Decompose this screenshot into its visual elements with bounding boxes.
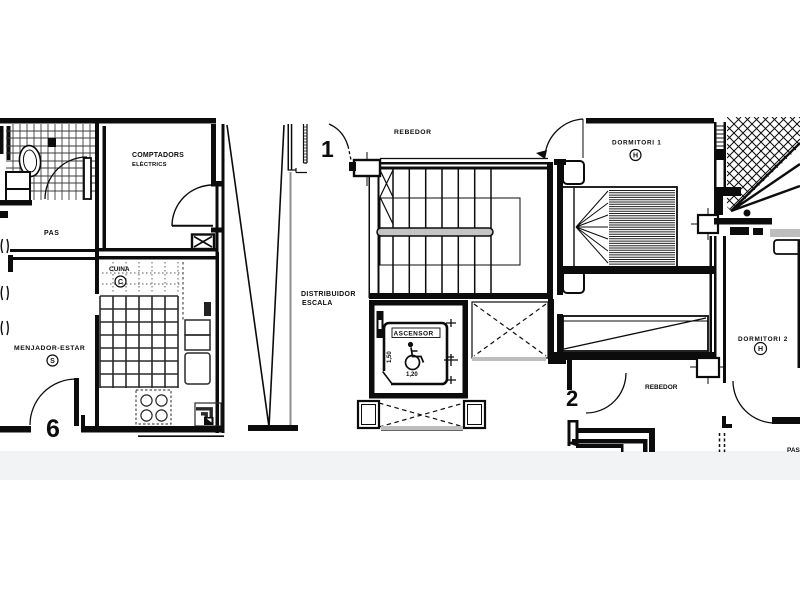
svg-text:PAS: PAS xyxy=(787,447,800,454)
svg-text:CUINA: CUINA xyxy=(109,266,130,273)
svg-text:H: H xyxy=(758,346,763,353)
svg-text:DORMITORI 2: DORMITORI 2 xyxy=(738,336,788,343)
svg-text:MENJADOR-ESTAR: MENJADOR-ESTAR xyxy=(14,345,85,352)
svg-text:COMPTADORS: COMPTADORS xyxy=(132,152,184,159)
svg-text:DISTRIBUIDOR: DISTRIBUIDOR xyxy=(301,291,356,298)
svg-text:1,20: 1,20 xyxy=(406,372,418,378)
svg-text:6: 6 xyxy=(46,415,60,443)
svg-text:ESCALA: ESCALA xyxy=(302,300,333,307)
svg-text:H: H xyxy=(633,153,638,160)
svg-text:REBEDOR: REBEDOR xyxy=(645,384,678,391)
svg-text:2: 2 xyxy=(566,386,578,411)
svg-text:C: C xyxy=(118,279,123,286)
svg-text:ASCENSOR: ASCENSOR xyxy=(394,331,434,338)
svg-text:DORMITORI 1: DORMITORI 1 xyxy=(612,140,661,147)
svg-text:PAS: PAS xyxy=(44,230,59,237)
svg-text:ELÈCTRICS: ELÈCTRICS xyxy=(132,160,167,168)
svg-text:S: S xyxy=(50,358,55,365)
svg-text:1: 1 xyxy=(321,136,334,162)
svg-text:REBEDOR: REBEDOR xyxy=(394,129,432,136)
svg-text:1,50: 1,50 xyxy=(387,351,393,363)
